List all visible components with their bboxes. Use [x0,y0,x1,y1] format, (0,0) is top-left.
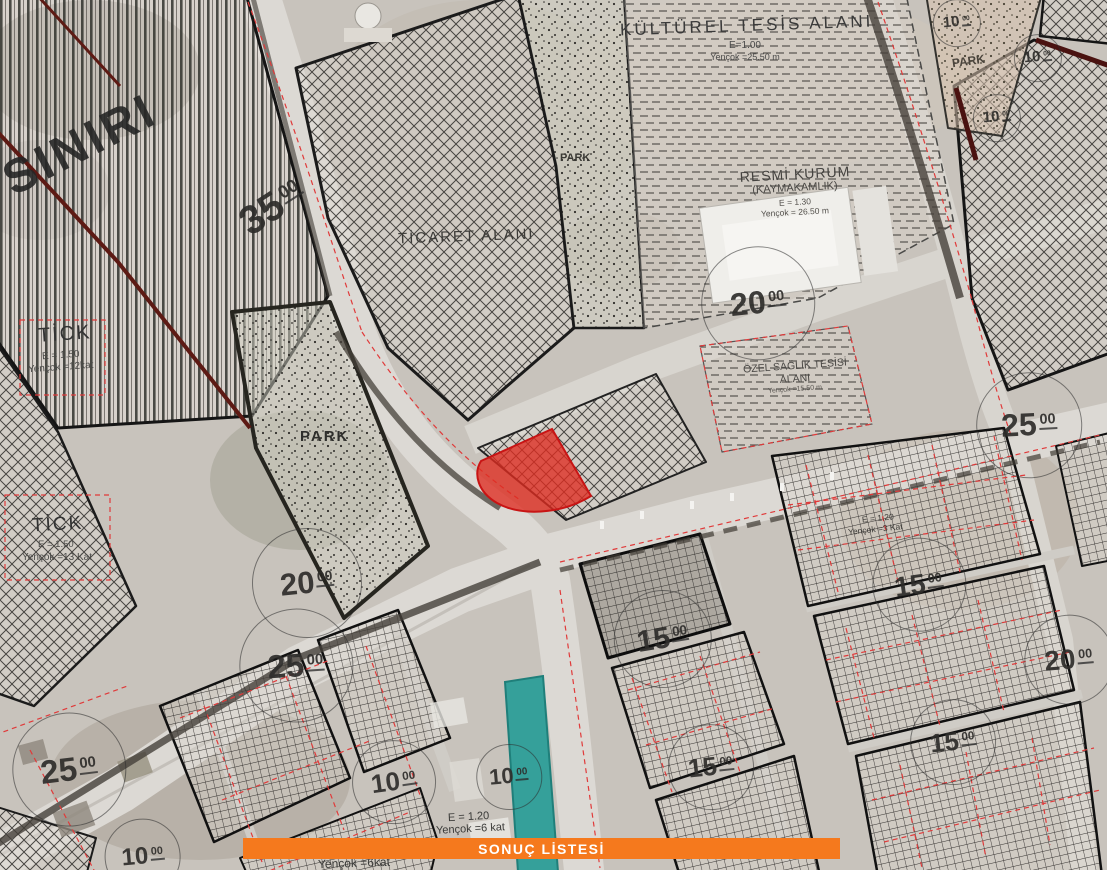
road-width-decimals: 00 [718,755,734,771]
road-width-value: 25 [1000,406,1037,444]
road-width-value: 15 [892,568,927,603]
kulturel-yencok-value: Yençok =25.50 m [620,52,870,62]
road-width-marker: 1000 [488,763,529,790]
road-width-decimals: 00 [515,767,529,781]
tick-lower-title: TİCK [31,513,83,537]
road-width-decimals: 00 [960,730,976,746]
road-width-decimals: 00 [1042,51,1052,62]
road-width-value: 10 [982,108,1000,126]
road-width-value: 15 [929,726,961,759]
road-width-marker: 2500 [38,749,99,791]
road-width-value: 15 [634,621,672,659]
road-width-decimals: 00 [961,16,971,27]
road-width-decimals: 00 [926,571,944,589]
road-width-decimals: 00 [401,769,418,786]
road-width-marker: 1000 [942,13,972,33]
road-width-marker: 1500 [687,751,736,783]
road-width-decimals: 00 [670,623,689,642]
sonuc-listesi-button[interactable]: SONUÇ LİSTESİ [243,838,840,859]
road-width-decimals: 00 [767,289,787,308]
road-width-marker: 1000 [982,108,1012,128]
road-width-decimals: 00 [305,652,325,671]
road-width-decimals: 00 [1001,111,1011,122]
road-width-marker: 2000 [729,283,788,322]
road-width-marker: 2500 [1000,407,1057,443]
road-width-decimals: 00 [1077,647,1094,664]
road-width-marker: 2000 [278,564,335,601]
road-width-value: 10 [369,765,402,799]
tick-upper-title: TİCK [37,321,92,348]
road-width-marker: 1500 [635,620,691,658]
park-strip-label: PARK [560,152,590,165]
road-width-value: 25 [38,750,79,791]
tick-lower-e-value: E = 1.50 [38,540,74,551]
road-width-decimals: 00 [1038,412,1057,430]
sonuc-listesi-button-label: SONUÇ LİSTESİ [478,841,605,857]
road-width-value: 15 [687,751,719,784]
road-width-marker: 2500 [266,647,326,686]
road-width-value: 20 [1043,643,1077,677]
road-width-value: 25 [266,646,305,685]
map-canvas[interactable]: SINIRI KÜLTÜREL TESİS ALANI E=1.00 Yenço… [0,0,1107,870]
road-width-value: 10 [942,13,960,31]
road-width-marker: 1000 [1023,48,1053,68]
road-width-decimals: 00 [78,755,99,775]
road-width-marker: 2000 [1043,644,1094,677]
road-width-marker: 1000 [369,765,418,799]
road-width-decimals: 00 [149,846,164,861]
tick-lower-yencok-value: Yençok =13 Kat [22,552,92,564]
road-width-marker: 1500 [893,567,946,602]
kulturel-e-value: E=1.00 [620,40,870,52]
road-width-value: 10 [488,763,515,790]
road-width-value: 10 [1023,48,1041,66]
park-left-label: PARK [300,428,349,445]
road-width-value: 20 [278,564,316,602]
road-width-value: 20 [728,284,767,324]
road-width-decimals: 00 [315,569,334,588]
road-width-marker: 1000 [121,843,166,870]
road-width-marker: 1500 [929,726,978,758]
road-width-value: 10 [120,842,149,870]
